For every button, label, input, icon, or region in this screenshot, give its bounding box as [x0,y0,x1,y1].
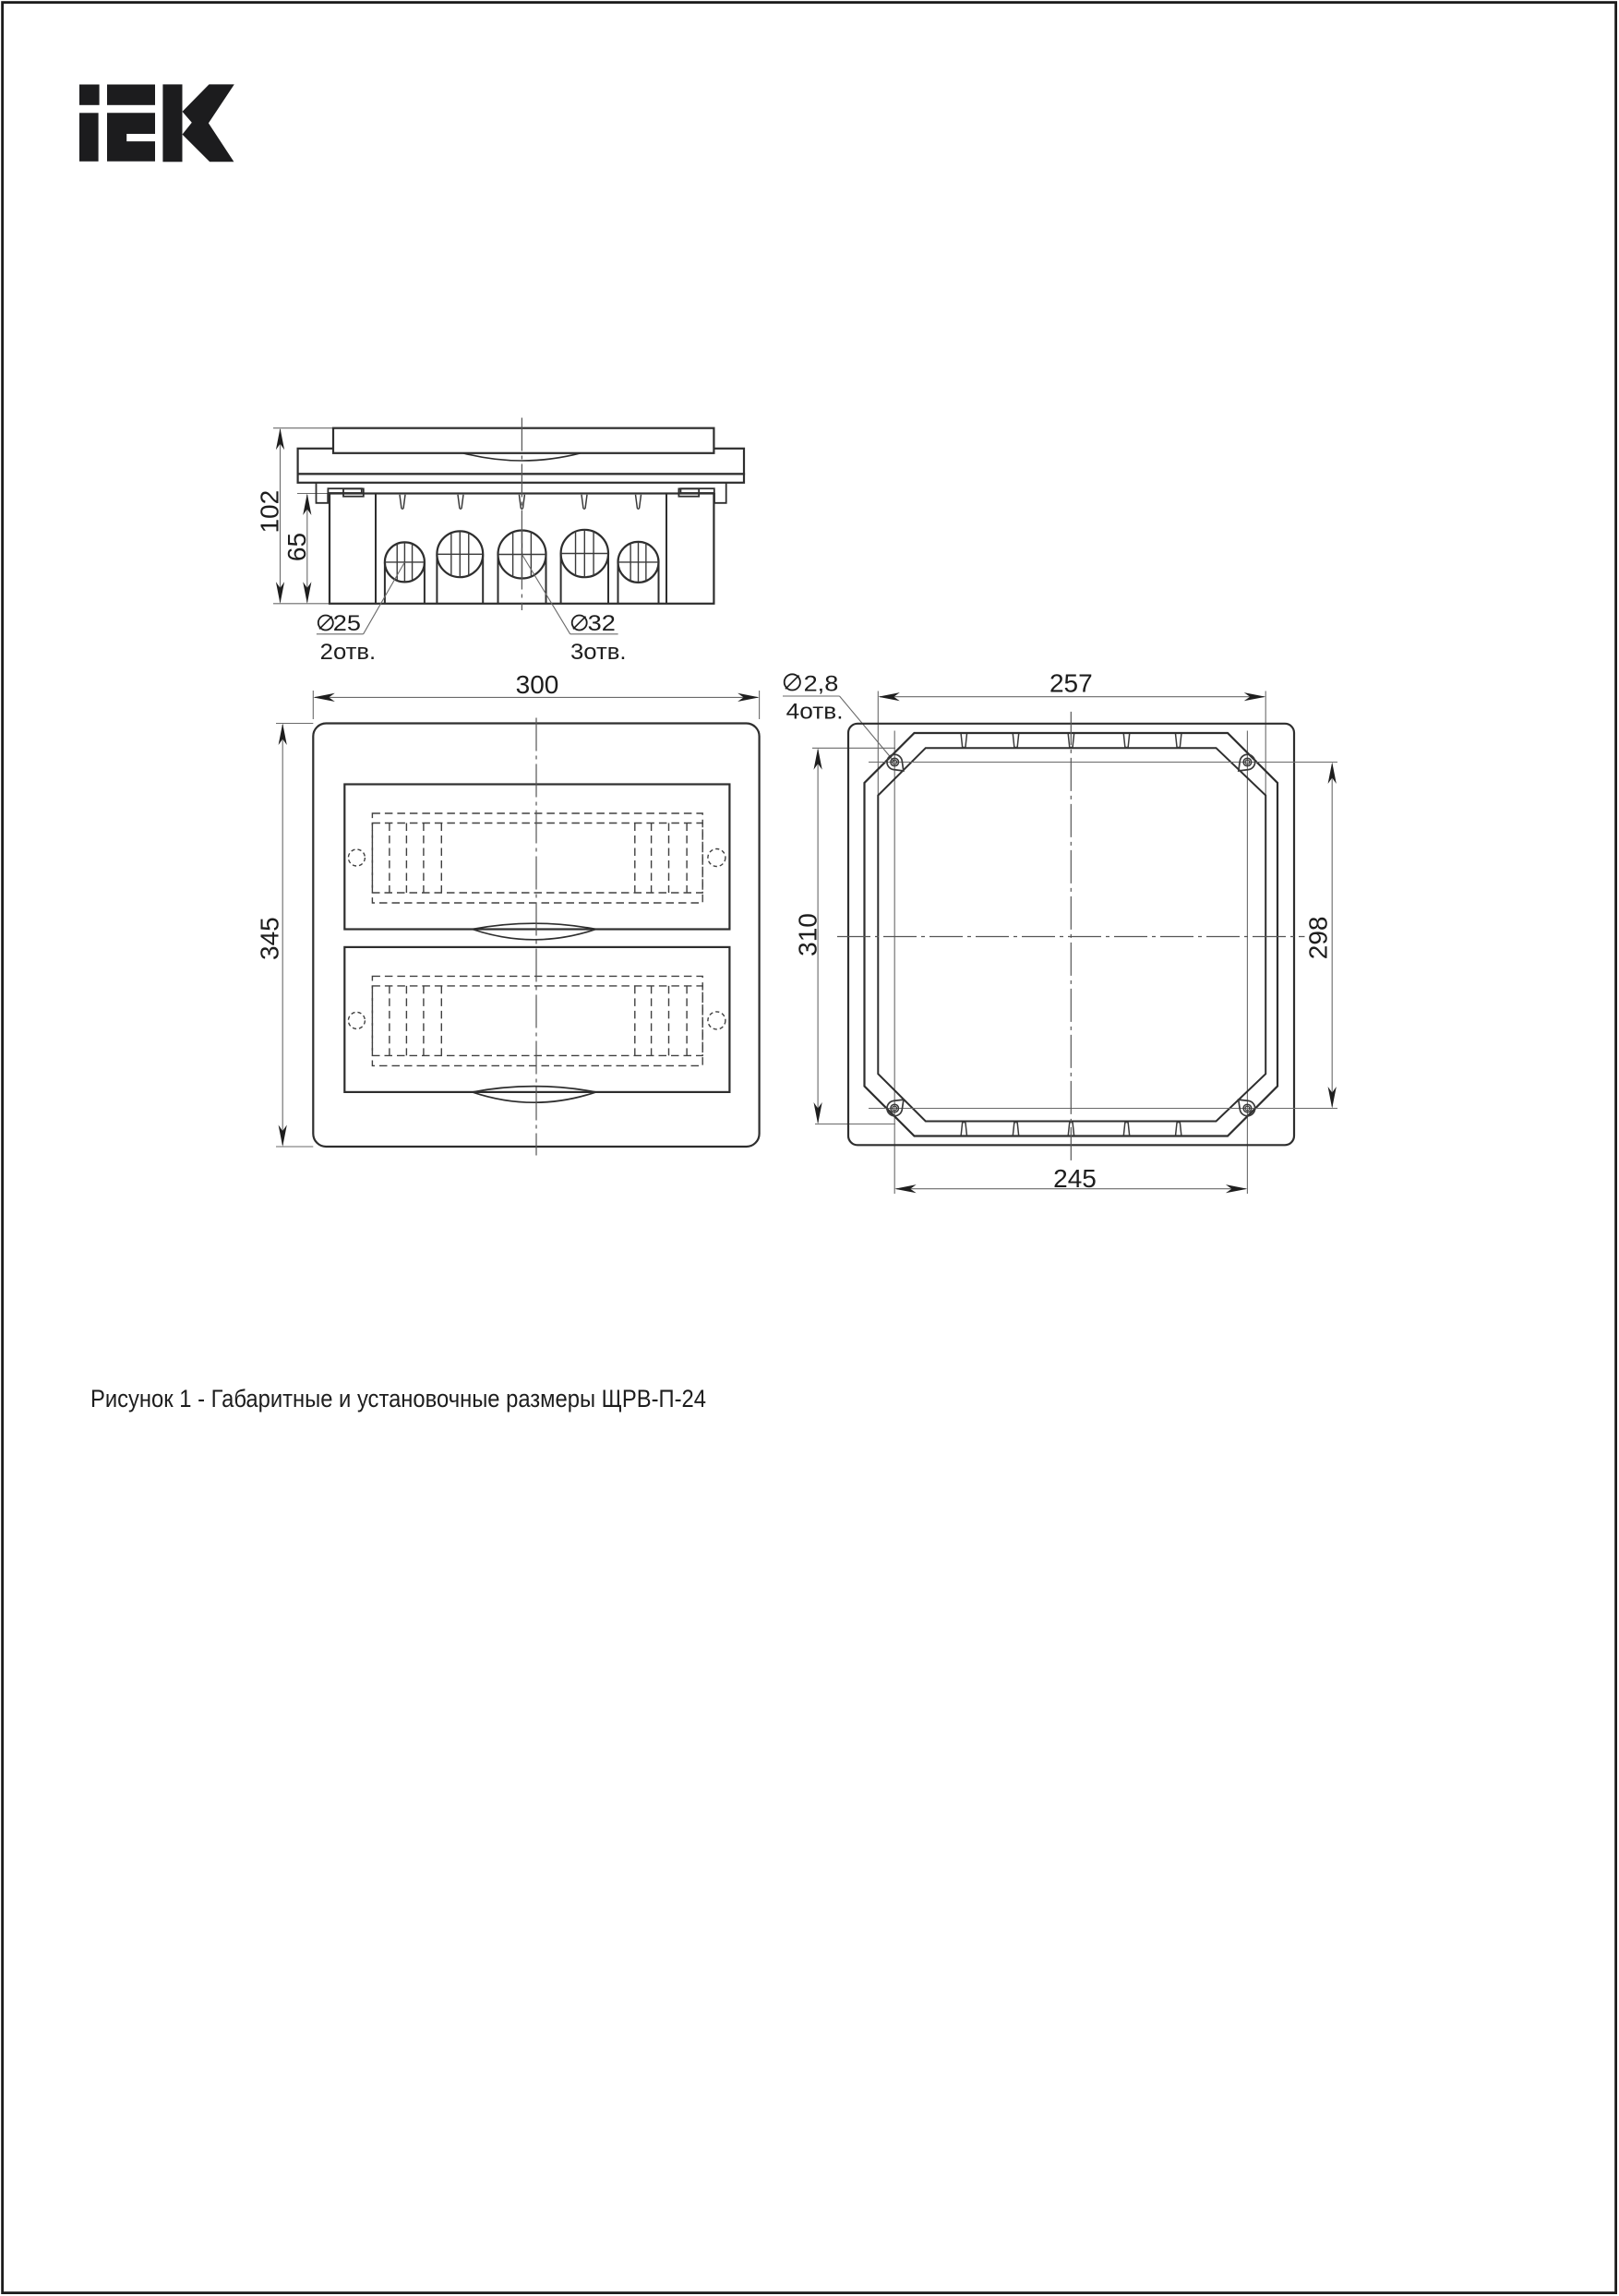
svg-text:4отв.: 4отв. [786,699,844,724]
svg-text:2отв.: 2отв. [320,640,377,665]
svg-text:245: 245 [1053,1164,1097,1193]
svg-text:102: 102 [256,490,284,534]
svg-text:257: 257 [1049,669,1093,698]
svg-text:310: 310 [794,913,822,956]
svg-text:Рисунок 1 - Габаритные и устан: Рисунок 1 - Габаритные и установочные ра… [90,1385,706,1412]
svg-text:32: 32 [588,611,616,636]
svg-text:2,8: 2,8 [804,672,839,697]
svg-text:3отв.: 3отв. [570,640,627,665]
svg-text:25: 25 [333,611,361,636]
svg-text:345: 345 [256,917,284,960]
svg-text:298: 298 [1304,917,1333,960]
svg-text:65: 65 [282,533,311,561]
svg-text:300: 300 [516,670,559,699]
